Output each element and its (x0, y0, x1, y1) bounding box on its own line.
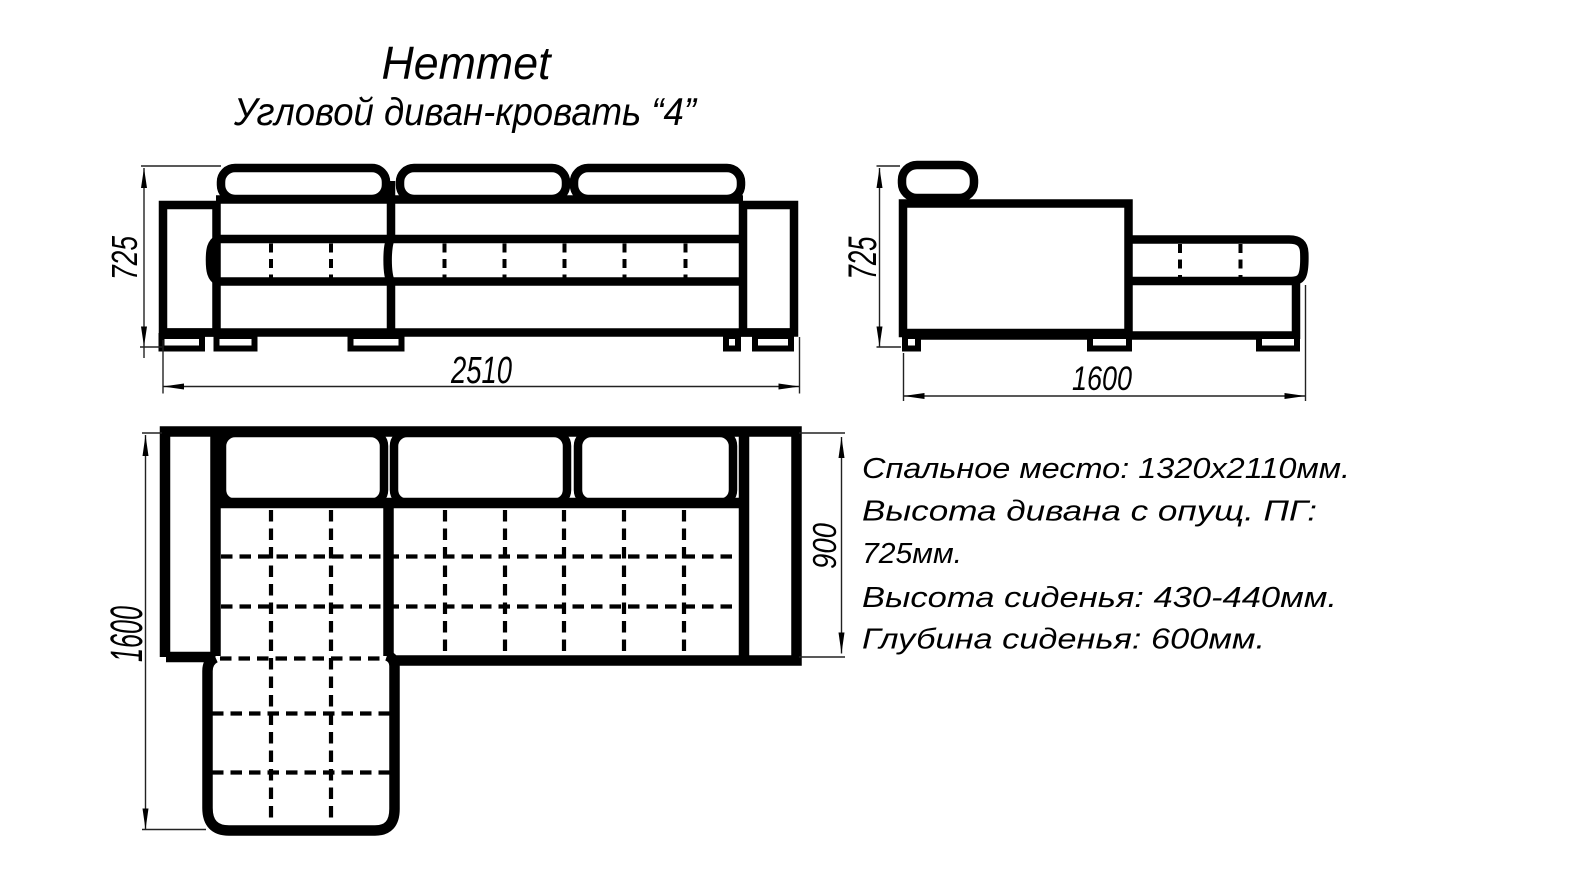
svg-text:Глубина сиденья: 600мм.: Глубина сиденья: 600мм. (862, 624, 1265, 656)
svg-text:Угловой диван-кровать “4”: Угловой диван-кровать “4” (233, 91, 698, 134)
svg-text:Высота дивана с опущ. ПГ:: Высота дивана с опущ. ПГ: (862, 496, 1317, 528)
svg-text:1600: 1600 (1072, 360, 1132, 398)
svg-text:725: 725 (841, 236, 885, 279)
svg-text:Hemmet: Hemmet (382, 37, 553, 89)
svg-text:Высота сиденья: 430-440мм.: Высота сиденья: 430-440мм. (862, 582, 1337, 614)
svg-text:Спальное место: 1320х2110мм.: Спальное место: 1320х2110мм. (862, 453, 1350, 485)
svg-text:725: 725 (104, 235, 145, 280)
svg-text:900: 900 (806, 522, 843, 569)
svg-text:2510: 2510 (450, 350, 512, 392)
svg-text:1600: 1600 (101, 606, 152, 662)
svg-text:725мм.: 725мм. (862, 538, 962, 570)
